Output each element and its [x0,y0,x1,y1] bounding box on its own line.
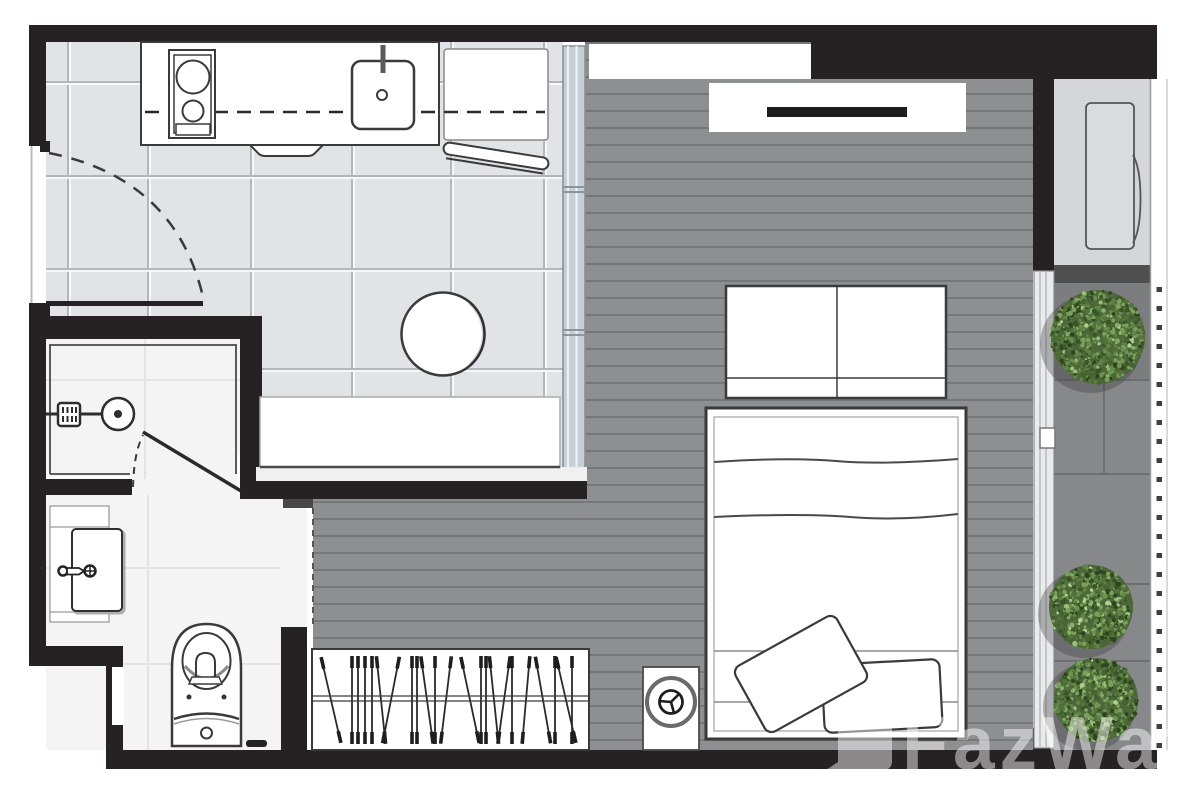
svg-text:FazWaz: FazWaz [902,701,1179,785]
